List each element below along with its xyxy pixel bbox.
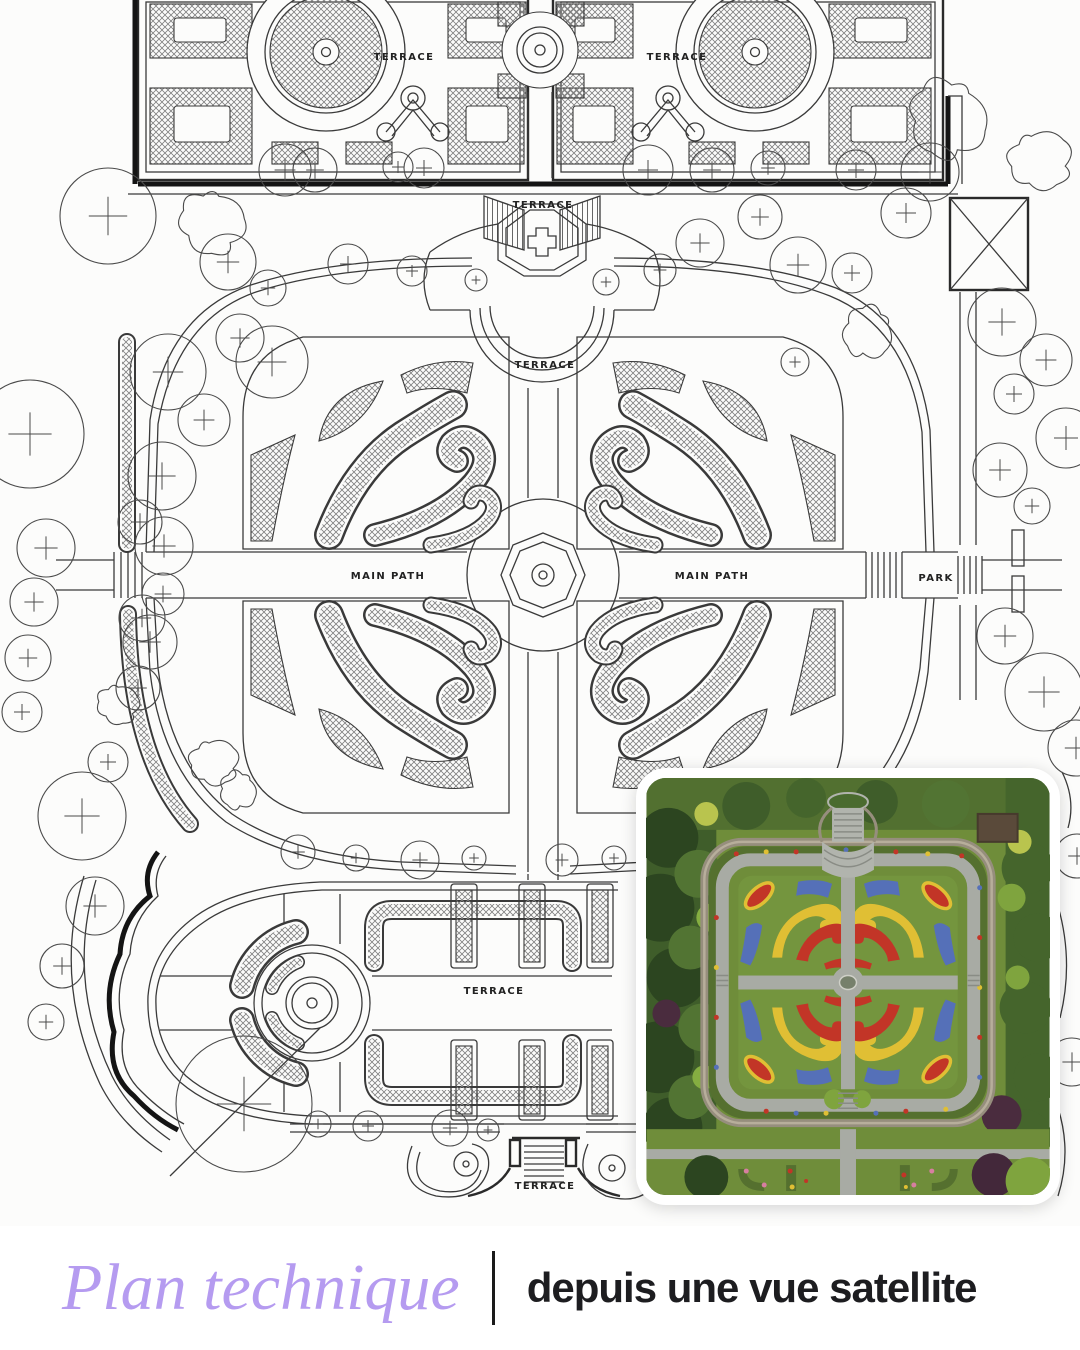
terrace-label-upper-steps: TERRACE (513, 200, 574, 211)
park-label: PARK (918, 573, 953, 584)
terrace-label-bottom-steps: TERRACE (515, 1181, 576, 1192)
satellite-inset-card (636, 768, 1060, 1205)
garden-hut (978, 814, 1018, 842)
main-path-label-left: MAIN PATH (351, 571, 425, 582)
terrace-label-top-right: TERRACE (647, 52, 708, 63)
main-path-label-right: MAIN PATH (675, 571, 749, 582)
terrace-label-top-left: TERRACE (374, 52, 435, 63)
rose-garden-band (646, 1129, 1050, 1195)
terrace-label-mid-steps: TERRACE (515, 360, 576, 371)
post-canvas: TERRACE TERRACE TERRACE TERRACE MAIN PAT… (0, 0, 1080, 1350)
terrace-label-lower-garden: TERRACE (464, 986, 525, 997)
pavilion (950, 198, 1028, 290)
upper-steps (424, 196, 660, 382)
caption-bar: Plan technique depuis une vue satellite (0, 1226, 1080, 1350)
sunken-parterre (704, 842, 991, 1123)
satellite-photo (646, 778, 1050, 1195)
lower-garden (71, 852, 660, 1199)
caption-divider (492, 1251, 495, 1325)
caption-subtitle: depuis une vue satellite (527, 1264, 977, 1312)
caption-title: Plan technique (62, 1255, 460, 1321)
